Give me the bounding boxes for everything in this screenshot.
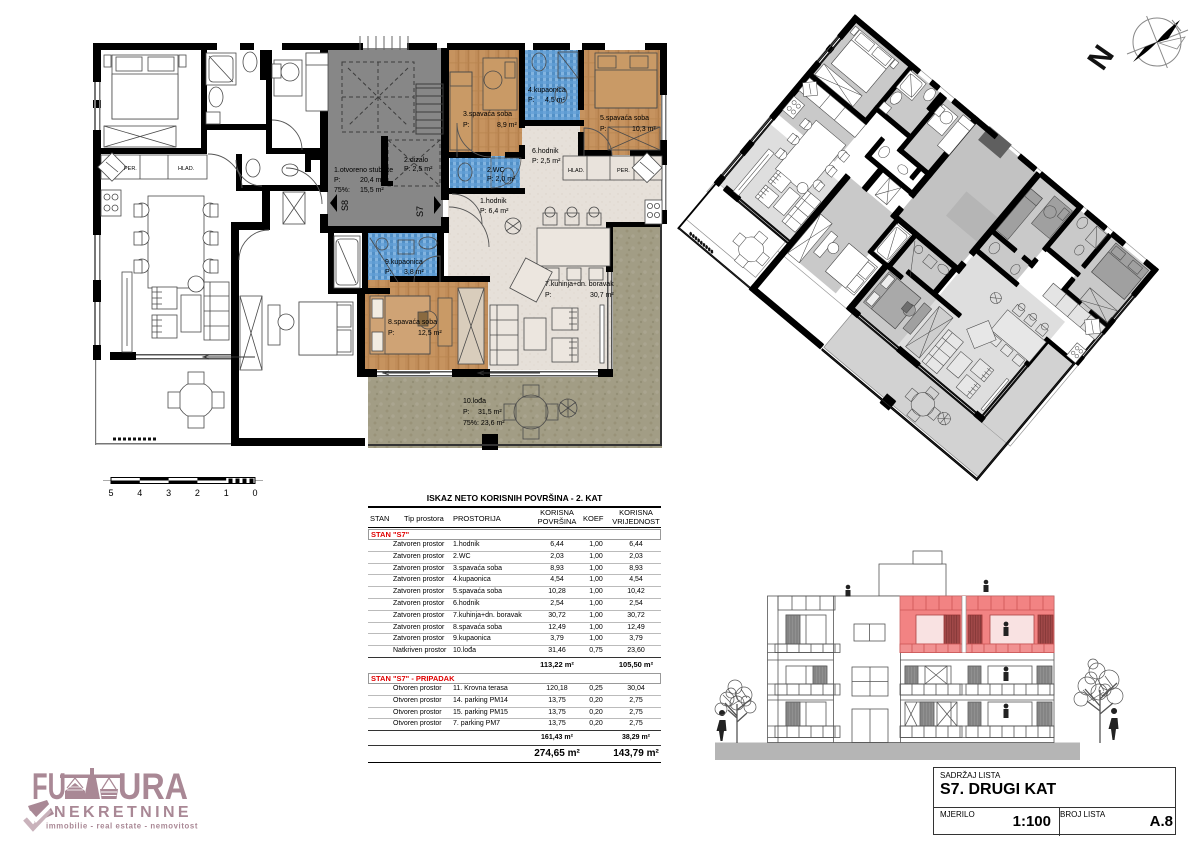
svg-text:P:: P: <box>463 409 470 416</box>
svg-text:75%: 23,6 m²: 75%: 23,6 m² <box>463 420 505 427</box>
svg-text:4,5 m²: 4,5 m² <box>545 97 566 104</box>
svg-text:3.spavaća soba: 3.spavaća soba <box>463 111 512 118</box>
svg-text:P:: P: <box>545 292 552 299</box>
svg-text:10.lođa: 10.lođa <box>463 398 486 405</box>
svg-text:2.dizalo: 2.dizalo <box>404 157 428 164</box>
svg-text:12,5 m²: 12,5 m² <box>418 330 442 337</box>
svg-text:P:: P: <box>334 177 341 184</box>
svg-text:10,3 m²: 10,3 m² <box>632 126 656 133</box>
svg-text:PER.: PER. <box>124 166 137 172</box>
svg-text:20,4 m²: 20,4 m² <box>360 177 384 184</box>
svg-text:1.hodnik: 1.hodnik <box>480 198 507 205</box>
svg-text:P: 2,0 m²: P: 2,0 m² <box>487 176 516 183</box>
svg-text:NEKRETNINE: NEKRETNINE <box>54 804 192 821</box>
svg-text:immobilie - real estate - nemo: immobilie - real estate - nemovitost <box>46 822 198 831</box>
svg-text:P:: P: <box>600 126 607 133</box>
svg-text:3: 3 <box>166 488 171 498</box>
svg-text:P: 6,4 m²: P: 6,4 m² <box>480 208 509 215</box>
svg-text:5: 5 <box>108 488 113 498</box>
svg-text:30,7 m²: 30,7 m² <box>590 292 614 299</box>
svg-text:3,8 m²: 3,8 m² <box>404 269 425 276</box>
svg-text:P: 2,5 m²: P: 2,5 m² <box>532 158 561 165</box>
svg-text:75%:: 75%: <box>334 187 350 194</box>
svg-text:P: 2,5 m²: P: 2,5 m² <box>404 166 433 173</box>
svg-text:1.otvoreno stubište: 1.otvoreno stubište <box>334 167 393 174</box>
svg-text:URA: URA <box>118 766 188 807</box>
svg-text:N: N <box>1081 39 1120 76</box>
svg-text:FU: FU <box>32 766 66 807</box>
svg-text:5.spavaća soba: 5.spavaća soba <box>600 115 649 122</box>
svg-text:6.hodnik: 6.hodnik <box>532 148 559 155</box>
svg-text:8,9 m²: 8,9 m² <box>497 122 518 129</box>
svg-text:8.spavaća soba: 8.spavaća soba <box>388 319 437 326</box>
svg-text:P:: P: <box>528 97 535 104</box>
svg-text:HLAD.: HLAD. <box>178 166 195 172</box>
svg-text:31,5 m²: 31,5 m² <box>478 409 502 416</box>
svg-text:7.kuhinja+dn. boravak: 7.kuhinja+dn. boravak <box>545 281 614 288</box>
svg-text:2: 2 <box>195 488 200 498</box>
svg-text:9.kupaonica: 9.kupaonica <box>385 259 423 266</box>
svg-text:1: 1 <box>224 488 229 498</box>
svg-text:HLAD.: HLAD. <box>568 168 585 174</box>
svg-text:S8: S8 <box>340 200 350 211</box>
svg-text:2.WC: 2.WC <box>487 167 505 174</box>
svg-text:S7: S7 <box>415 206 425 217</box>
svg-text:4: 4 <box>137 488 142 498</box>
svg-text:4.kupaonica: 4.kupaonica <box>528 87 566 94</box>
svg-text:0: 0 <box>252 488 257 498</box>
svg-text:PER.: PER. <box>617 168 630 174</box>
svg-text:P:: P: <box>388 330 395 337</box>
svg-text:P:: P: <box>385 269 392 276</box>
svg-text:15,5 m²: 15,5 m² <box>360 187 384 194</box>
svg-text:P:: P: <box>463 122 470 129</box>
